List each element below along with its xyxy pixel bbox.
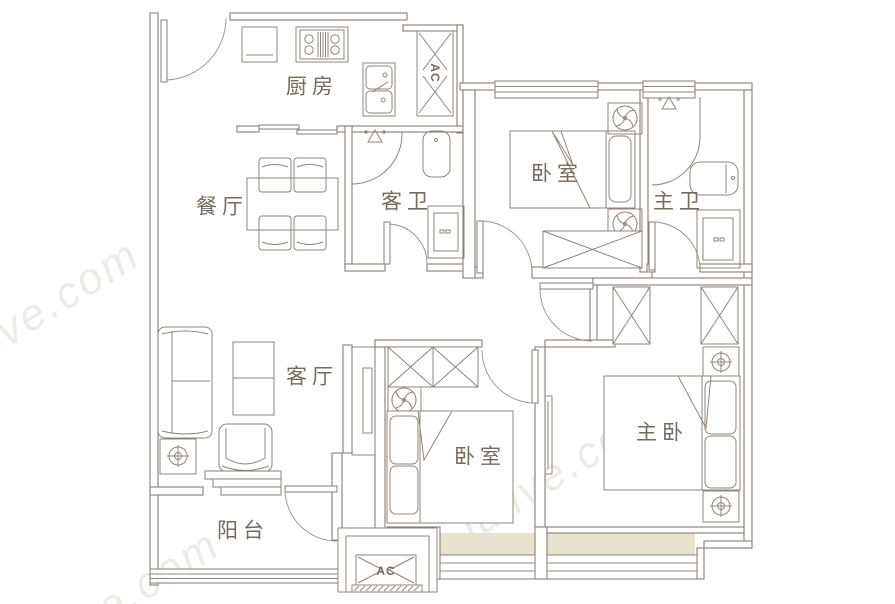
dining-area — [247, 158, 338, 250]
shower-icon — [659, 97, 679, 109]
fan-icon — [613, 106, 637, 130]
tv-stand-living — [352, 347, 375, 455]
wall-balcony-right — [332, 453, 342, 540]
corridor-door — [540, 283, 593, 341]
wall-bedroom-bottom-left — [375, 340, 385, 530]
shower-screen — [652, 97, 700, 185]
window-master-bath — [643, 81, 695, 98]
wall-step-horizontal — [704, 541, 752, 548]
water-heater — [423, 131, 450, 177]
lamp-icon — [167, 445, 189, 467]
wall-ac-closet-top — [403, 25, 463, 31]
floor-plan-svg: julive.com julive.com julive.com — [0, 0, 895, 604]
wall-ac-closet-right — [457, 25, 463, 133]
kitchen-sink — [363, 63, 395, 116]
kitchen-sliding-door — [259, 125, 337, 134]
window-balcony-bottom — [150, 569, 346, 583]
watermark-text: julive.com — [0, 229, 149, 393]
armchair — [219, 424, 272, 472]
wall-bedroom-top-bottom — [532, 267, 652, 278]
window-bedroom-top — [495, 81, 598, 98]
sill-bedroom-bottom — [440, 533, 535, 555]
sill-master-bedroom — [547, 533, 695, 555]
master-closets — [613, 287, 738, 344]
bedroom-bottom-door — [482, 350, 538, 403]
wall-master-bottom — [547, 527, 744, 533]
wall-master-top — [593, 278, 752, 285]
guest-bath-door — [384, 222, 427, 264]
bedroom-bottom — [387, 347, 513, 523]
label-bedroom-top: 卧室 — [531, 163, 583, 186]
wall-kitchen-top — [230, 13, 407, 20]
wall-corridor-stub — [545, 340, 615, 347]
balcony-door — [285, 486, 337, 541]
bedroom-top-door — [477, 221, 532, 273]
guest-bath-vanity — [428, 206, 464, 258]
entrance-door — [161, 18, 226, 82]
watermark-text: julive.com — [7, 519, 229, 604]
wall-corridor-left — [590, 285, 597, 341]
coffee-table — [233, 342, 274, 415]
label-guest-bath: 客卫 — [381, 191, 433, 214]
master-bath-vanity — [697, 210, 740, 268]
wall-bay-pillar-mid — [535, 527, 547, 579]
dining-chair — [259, 158, 291, 192]
ac-closet-bottom: AC — [338, 528, 437, 592]
label-bedroom-bottom: 卧室 — [454, 446, 506, 469]
wall-bedroom-bottom-top — [375, 340, 482, 347]
label-master-bath: 主卫 — [653, 191, 705, 214]
shower-screen — [352, 132, 402, 184]
window-bedroom-bottom-bay — [440, 555, 535, 579]
label-master-bedroom: 主卧 — [636, 422, 688, 445]
closet-bedroom-top — [543, 231, 642, 268]
bedroom-top — [510, 103, 642, 268]
wall-guestbath-bedroom-divider — [463, 90, 475, 278]
lamp-icon — [710, 351, 732, 373]
label-kitchen: 厨房 — [286, 76, 338, 99]
sofa — [158, 327, 212, 438]
wall-left — [150, 13, 158, 585]
ac-bottom-label: AC — [376, 564, 395, 578]
closet-b — [701, 287, 738, 344]
wall-kitchen-bottom-a — [237, 126, 259, 132]
fan-icon — [392, 388, 416, 412]
ac-unit-top: AC — [417, 31, 453, 116]
fridge — [242, 27, 277, 62]
stove — [296, 27, 348, 62]
bay-window-sills — [440, 533, 695, 555]
dining-table — [247, 178, 338, 230]
label-balcony: 阳台 — [217, 520, 269, 543]
wall-step-vertical — [697, 548, 704, 579]
lamp-icon — [710, 495, 732, 517]
wall-balcony-top — [150, 487, 203, 495]
window-master-bay — [547, 555, 697, 579]
wardrobe-bedroom-bottom — [388, 347, 478, 387]
master-bathroom — [652, 97, 740, 268]
floor-plan: julive.com julive.com julive.com — [0, 0, 895, 604]
wall-guestbath-bottom-b — [427, 264, 468, 271]
wall-guestbath-bottom-a — [345, 264, 385, 271]
balcony-sliding-track — [205, 471, 281, 495]
dining-chair — [294, 216, 326, 250]
master-bath-door — [649, 222, 700, 270]
ac-top-label: AC — [428, 63, 442, 82]
dining-chair — [259, 216, 291, 250]
wall-right — [744, 90, 752, 548]
dining-chair — [294, 158, 326, 192]
wall-living-divider — [343, 345, 352, 453]
wall-guestbath-left — [345, 126, 352, 271]
label-dining: 餐厅 — [196, 196, 248, 219]
label-living: 客厅 — [286, 366, 338, 389]
closet-a — [613, 287, 650, 344]
